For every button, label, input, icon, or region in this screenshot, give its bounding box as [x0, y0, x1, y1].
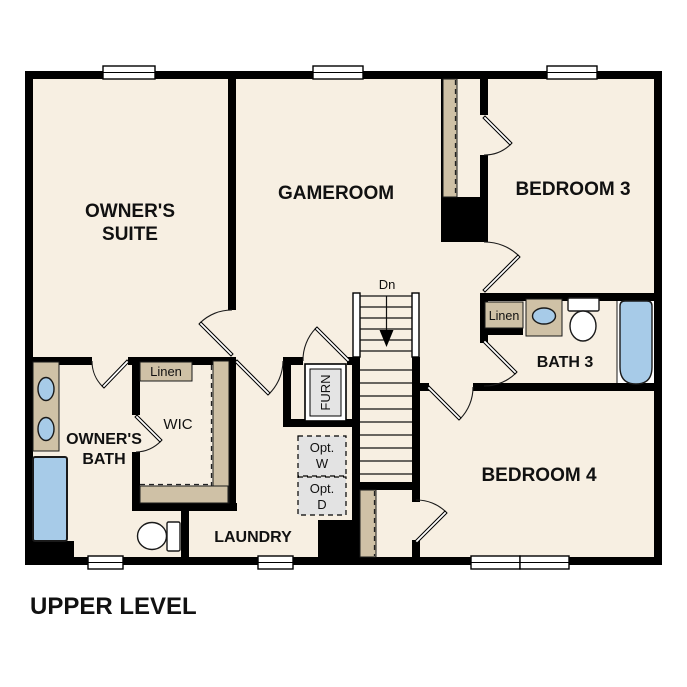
wall-below-stairs — [352, 482, 420, 490]
label-laundry: LAUNDRY — [214, 529, 292, 546]
window-bedroom3 — [547, 66, 597, 79]
wic-shelf-east — [213, 361, 229, 503]
block-chase — [441, 197, 488, 242]
label-bedroom3: BEDROOM 3 — [515, 179, 630, 200]
furnace-unit: FURN — [305, 364, 346, 421]
window-laundry — [258, 556, 293, 569]
wall-bedroom3-west-mid — [480, 155, 488, 197]
wall-furnace-north-stub — [283, 357, 303, 365]
label-stairs-dn: Dn — [379, 277, 396, 292]
label-owners-bath-2: BATH — [82, 451, 125, 468]
owners-shower — [33, 457, 67, 541]
floorplan-page: FURN Opt. W Opt. D OWNER'S SUITE GAMEROO… — [0, 0, 687, 687]
wall-wic-south — [132, 503, 237, 511]
wall-closet4-east-lower — [412, 540, 420, 565]
wall-bedroom4-north — [473, 383, 654, 391]
block-owners-bath-corner — [33, 541, 74, 565]
wall-stairs-east — [412, 357, 420, 490]
opt-dryer-label-2: D — [317, 497, 326, 512]
wall-outer-left — [25, 71, 33, 565]
block-laundry-corner — [318, 520, 360, 557]
floorplan-svg: FURN Opt. W Opt. D OWNER'S SUITE GAMEROO… — [0, 0, 687, 687]
label-gameroom: GAMEROOM — [278, 183, 394, 204]
bath3-sink — [533, 308, 556, 324]
owners-sink-2 — [38, 418, 54, 441]
wall-stairs-west — [352, 357, 360, 490]
opt-dryer-label-1: Opt. — [310, 481, 335, 496]
wall-wic-west-upper — [132, 365, 140, 415]
wall-linen-bath3-south — [483, 328, 523, 335]
label-linen-hall: Linen — [150, 364, 182, 379]
wall-bedroom3-bath3 — [480, 293, 654, 301]
wall-bedroom3-west-upper — [480, 79, 488, 115]
window-bedroom4-double — [471, 556, 569, 569]
window-owners-suite — [103, 66, 155, 79]
owners-toilet — [138, 522, 181, 551]
label-owners-suite-1: OWNER'S — [85, 201, 175, 222]
stair-rail-left — [353, 293, 360, 357]
window-gameroom — [313, 66, 363, 79]
optional-appliances: Opt. W Opt. D — [298, 436, 346, 515]
label-bath3: BATH 3 — [537, 354, 594, 371]
wall-owners-suite-east — [228, 79, 236, 310]
wall-bath-laundry-divider — [181, 511, 189, 557]
furnace-label: FURN — [318, 374, 333, 410]
wall-furnace-west — [283, 357, 291, 427]
owners-sink-1 — [38, 378, 54, 401]
stair-rail-right — [412, 293, 419, 357]
label-linen-bath3: Linen — [489, 309, 520, 323]
label-wic: WIC — [163, 416, 192, 433]
closet-bedroom4-shelf — [360, 490, 376, 557]
label-bedroom4: BEDROOM 4 — [481, 465, 597, 486]
wall-outer-right — [654, 71, 662, 565]
wic-shelf-south — [140, 486, 228, 503]
opt-washer-label-2: W — [316, 456, 329, 471]
label-owners-suite-2: SUITE — [102, 224, 158, 245]
opt-washer-label-1: Opt. — [310, 440, 335, 455]
bath3-tub — [620, 301, 652, 384]
label-owners-bath-1: OWNER'S — [66, 431, 142, 448]
window-owners-bath — [88, 556, 123, 569]
plan-title: UPPER LEVEL — [30, 593, 197, 620]
wall-wic-west-lower — [132, 452, 140, 511]
bath3-toilet — [568, 298, 599, 341]
